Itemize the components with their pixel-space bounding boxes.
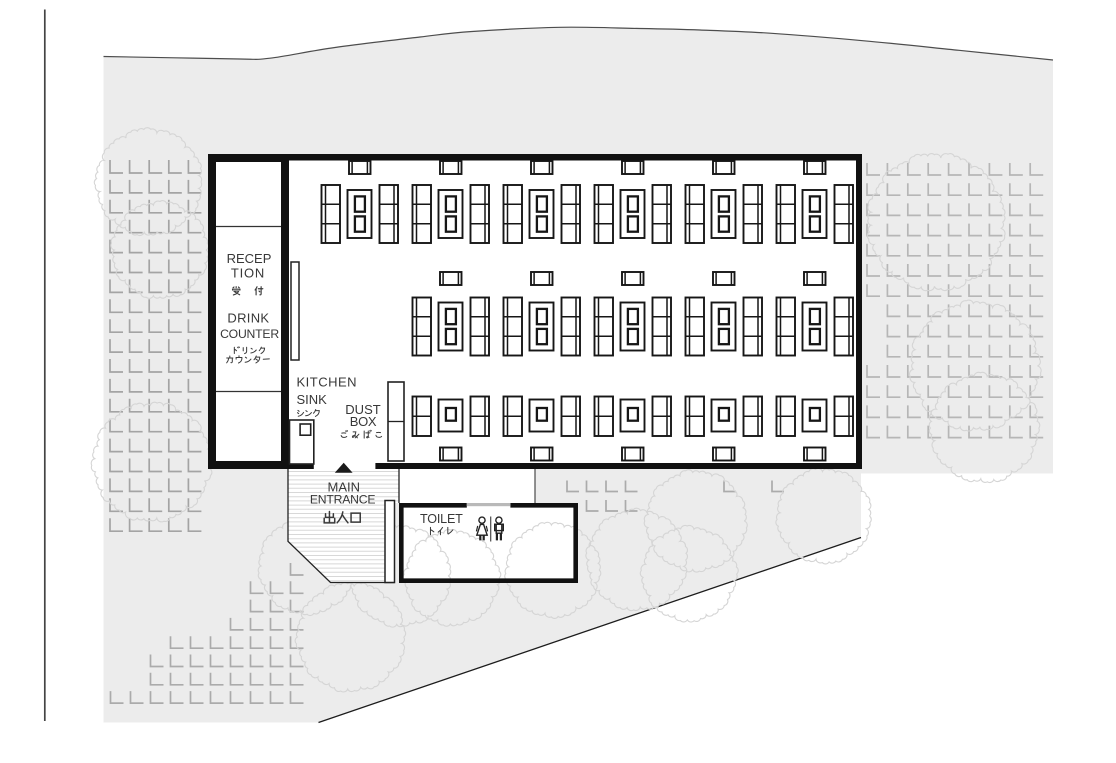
svg-text:KITCHEN: KITCHEN <box>297 375 358 390</box>
svg-text:TION: TION <box>231 266 265 281</box>
svg-text:COUNTER: COUNTER <box>220 327 279 341</box>
svg-text:BOX: BOX <box>350 414 377 429</box>
svg-text:ENTRANCE: ENTRANCE <box>310 493 376 507</box>
svg-text:TOILET: TOILET <box>420 512 463 526</box>
svg-text:DRINK: DRINK <box>227 311 269 326</box>
svg-text:SINK: SINK <box>297 392 328 407</box>
svg-text:RECEP: RECEP <box>227 251 272 266</box>
